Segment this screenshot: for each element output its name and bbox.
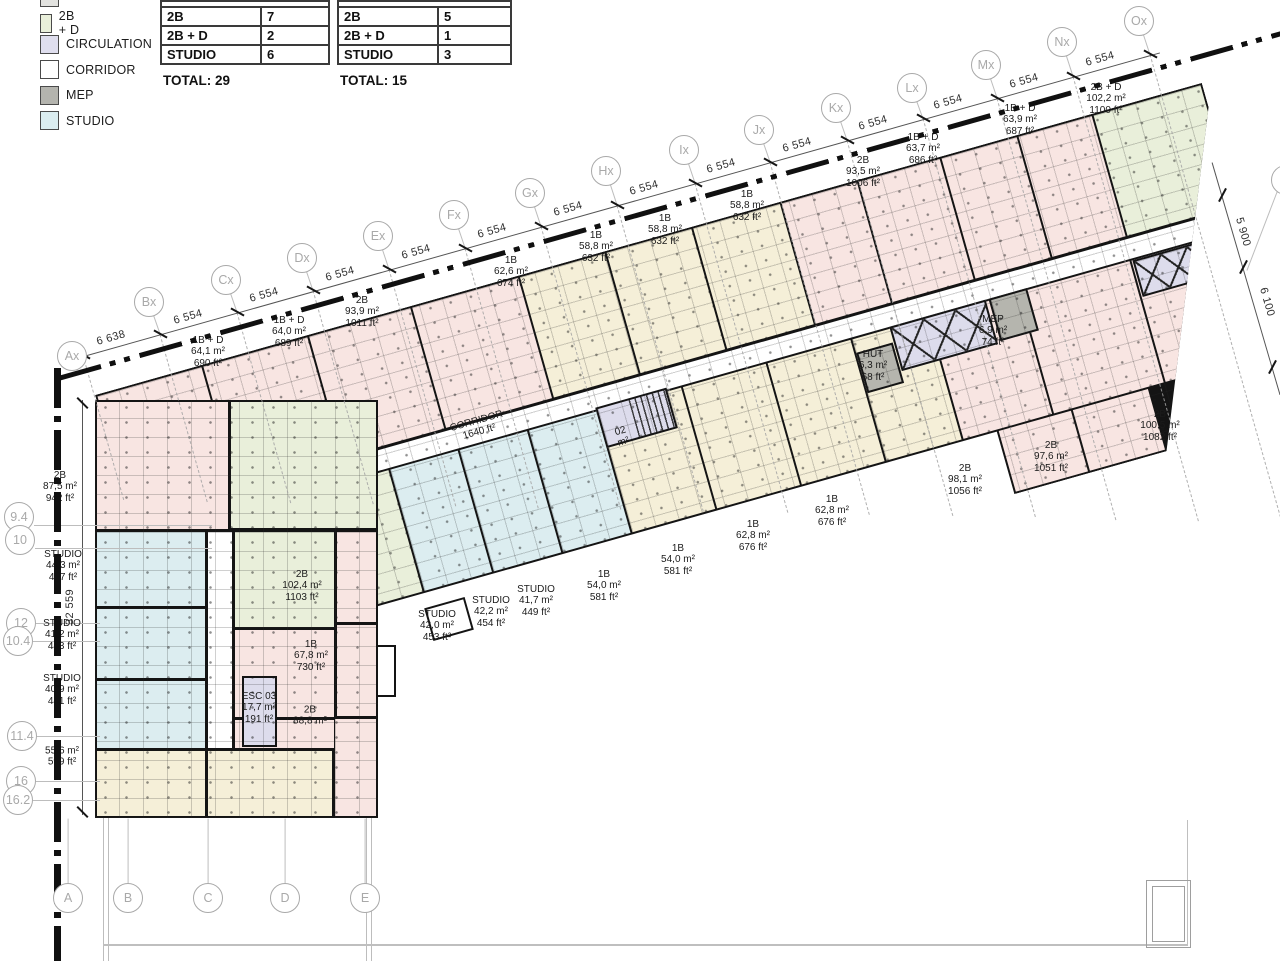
legend-item: 2B + D <box>40 9 82 37</box>
unit-label: STUDIO41,7 m²449 ft² <box>517 584 555 618</box>
unit-label-line: 54,0 m² <box>661 554 695 565</box>
bubble-leader <box>1246 180 1280 271</box>
grid-bubble-ox: Ox <box>1124 6 1154 36</box>
unit-label-line: 58,8 m² <box>648 224 682 235</box>
unit-label-line: 599 ft² <box>45 757 79 768</box>
grid-bubble-label: E <box>361 891 369 905</box>
grid-bubble-d: D <box>270 883 300 913</box>
unit-label-line: 6,3 m² <box>859 360 887 371</box>
unit-label-line: 40,9 m² <box>43 684 81 695</box>
unit-label: STUDIO42,2 m²454 ft² <box>472 595 510 629</box>
legend-item-label: CORRIDOR <box>66 63 136 77</box>
unit-label-line: 191 ft² <box>242 714 276 725</box>
unit-label-line: 100,5 m² <box>1140 420 1179 431</box>
unit-label: MEP6,9 m²74 ft² <box>979 314 1007 348</box>
site-outline <box>103 944 1188 946</box>
legend-swatch <box>40 111 59 130</box>
unit-label: STUDIO44,3 m²477 ft² <box>44 549 82 583</box>
unit-label-line: 93,5 m² <box>846 166 880 177</box>
unit-label-line: 1B <box>661 543 695 554</box>
legend-item: CORRIDOR <box>40 60 136 79</box>
grid-bubble-c: C <box>193 883 223 913</box>
unit-label-line: 449 ft² <box>517 607 555 618</box>
unit-count-cell: 5 <box>439 8 510 25</box>
floor-plan-canvas: 2B + DCIRCULATIONCORRIDORMEPSTUDIO 2B72B… <box>0 0 1280 961</box>
grid-bubble-label: 11.4 <box>10 729 33 743</box>
bubble-leader <box>33 800 100 801</box>
unit-type-cell: STUDIO <box>339 46 439 63</box>
unit-label-line: 1B <box>815 494 849 505</box>
grid-bubble-label: Nx <box>1054 35 1069 49</box>
legend-item-label: 2B + D <box>59 9 82 37</box>
unit-label-line: STUDIO <box>472 595 510 606</box>
bubble-leader <box>127 819 128 884</box>
unit-label-line: 67,8 m² <box>294 650 328 661</box>
grid-bubble-10.4: 10.4 <box>3 626 33 656</box>
unit-cell <box>337 625 376 716</box>
left-wing-building <box>95 400 378 818</box>
grid-bubble-hx: Hx <box>591 156 621 186</box>
dimension-line-left <box>82 400 83 815</box>
unit-label-line: 1B <box>648 213 682 224</box>
unit-label-line: 453 ft² <box>418 632 456 643</box>
unit-label-line: 64,1 m² <box>191 346 225 357</box>
dimension-text: 6 100 <box>1257 286 1277 318</box>
legend-item: MEP <box>40 86 94 105</box>
unit-label-line: 102,2 m² <box>1086 93 1125 104</box>
grid-bubble-cx: Cx <box>211 265 241 295</box>
unit-label: 2B93,5 m²1006 ft² <box>846 155 880 189</box>
unit-label: 1B58,8 m²632 ft² <box>730 189 764 223</box>
unit-label-line: 730 ft² <box>294 662 328 673</box>
grid-bubble-label: 16.2 <box>6 793 30 807</box>
unit-label-line: 41,7 m² <box>517 595 555 606</box>
unit-cell <box>208 532 232 748</box>
unit-label-line: STUDIO <box>44 549 82 560</box>
grid-bubble-label: C <box>203 891 212 905</box>
unit-label-line: 2B <box>1034 440 1068 451</box>
balcony <box>376 645 396 697</box>
legend-item-label: MEP <box>66 88 94 102</box>
site-shaft-outline <box>1152 886 1185 942</box>
unit-cell <box>97 609 205 678</box>
unit-label-line: 454 ft² <box>472 618 510 629</box>
unit-label-line: 2B <box>282 569 321 580</box>
grid-bubble-label: Ex <box>371 229 386 243</box>
unit-label-line: 97,6 m² <box>1034 451 1068 462</box>
legend-item-label: STUDIO <box>66 114 114 128</box>
unit-label-line: 632 ft² <box>730 212 764 223</box>
unit-count-cell: 7 <box>262 8 328 25</box>
unit-label: 1B62,8 m²676 ft² <box>736 519 770 553</box>
unit-label-line: 1B <box>736 519 770 530</box>
unit-label-line: 62,8 m² <box>736 530 770 541</box>
unit-label-line: 676 ft² <box>815 517 849 528</box>
unit-label-line: 1006 ft² <box>846 178 880 189</box>
grid-bubble-label: B <box>124 891 132 905</box>
grid-bubble-label: 10.4 <box>6 634 30 648</box>
unit-type-cell: STUDIO <box>162 46 262 63</box>
unit-label-line: 63,7 m² <box>906 143 940 154</box>
bubble-leader <box>67 819 68 884</box>
grid-bubble-ex: Ex <box>363 221 393 251</box>
unit-label-line: 443 ft² <box>43 641 81 652</box>
unit-count-table: 2B52B + D1STUDIO3 <box>337 0 512 65</box>
unit-cell <box>337 532 376 622</box>
unit-label-line: 632 ft² <box>648 236 682 247</box>
grid-bubble-label: Gx <box>522 186 538 200</box>
unit-label: 1B62,6 m²674 ft² <box>494 255 528 289</box>
unit-label-line: 88,8 m² <box>293 716 327 727</box>
bubble-leader <box>36 781 100 782</box>
unit-label-line: 93,9 m² <box>345 306 379 317</box>
unit-type-cell: 2B + D <box>339 27 439 44</box>
unit-label: 2B98,1 m²1056 ft² <box>948 463 982 497</box>
unit-label: 1B54,0 m²581 ft² <box>661 543 695 577</box>
unit-label-line: 1B <box>730 189 764 200</box>
unit-label-line: 102,4 m² <box>282 580 321 591</box>
unit-label-line: 55,6 m² <box>45 746 79 757</box>
unit-label-line: 68 ft² <box>859 372 887 383</box>
unit-count-cell: 3 <box>439 46 510 63</box>
grid-bubble-ax: Ax <box>57 341 87 371</box>
grid-bubble-mx: Mx <box>971 50 1001 80</box>
bubble-leader <box>364 819 365 884</box>
unit-label: 1B62,8 m²676 ft² <box>815 494 849 528</box>
unit-label-line: 54,0 m² <box>587 580 621 591</box>
unit-cell <box>208 751 332 816</box>
table-total: TOTAL: 29 <box>163 73 230 88</box>
grid-bubble-bx: Bx <box>134 287 164 317</box>
bubble-leader <box>207 819 208 884</box>
unit-count-table: 2B72B + D2STUDIO6 <box>160 0 330 65</box>
table-row: STUDIO3 <box>339 46 510 63</box>
grid-bubble-e: E <box>350 883 380 913</box>
unit-label-line: 2B <box>293 705 327 716</box>
grid-bubble-jx: Jx <box>744 115 774 145</box>
unit-label-line: 1011 ft² <box>345 318 379 329</box>
grid-bubble-label: Kx <box>829 101 844 115</box>
grid-bubble-label: Fx <box>447 208 461 222</box>
unit-label-line: 42,0 m² <box>418 620 456 631</box>
unit-label-line: 64,0 m² <box>272 326 306 337</box>
unit-type-cell: 2B + D <box>162 27 262 44</box>
unit-label: 2B93,9 m²1011 ft² <box>345 295 379 329</box>
bubble-leader <box>37 736 100 737</box>
legend-swatch <box>40 60 59 79</box>
grid-bubble-b: B <box>113 883 143 913</box>
unit-label-line: STUDIO <box>43 673 81 684</box>
unit-label: ESC 0317,7 m²191 ft² <box>242 691 276 725</box>
unit-label-line: 1B <box>294 639 328 650</box>
unit-label-line: 687 ft² <box>1003 126 1037 137</box>
table-row: 2B + D1 <box>339 27 510 46</box>
unit-label-line: STUDIO <box>418 609 456 620</box>
unit-label-line: ESC 03 <box>242 691 276 702</box>
unit-label-line: 690 ft² <box>191 358 225 369</box>
grid-bubble-10: 10 <box>5 525 35 555</box>
grid-bubble-label: 9.4 <box>10 510 27 524</box>
legend-item: STUDIO <box>40 111 114 130</box>
unit-label-line: 17,7 m² <box>242 702 276 713</box>
unit-label: 1B54,0 m²581 ft² <box>587 569 621 603</box>
grid-bubble-label: D <box>280 891 289 905</box>
unit-label-line: 689 ft² <box>272 338 306 349</box>
grid-bubble-fx: Fx <box>439 200 469 230</box>
grid-bubble-label: Ox <box>1131 14 1147 28</box>
grid-bubble-label: Cx <box>218 273 233 287</box>
unit-label-line: 42,2 m² <box>472 606 510 617</box>
legend-swatch <box>40 14 52 33</box>
table-row: 2B + D2 <box>162 27 328 46</box>
grid-bubble-right-partial <box>1271 165 1280 195</box>
unit-label-line: 441 ft² <box>43 696 81 707</box>
unit-label: 1B58,8 m²632 ft² <box>579 230 613 264</box>
unit-cell <box>231 402 376 528</box>
unit-label-line: HUT <box>859 349 887 360</box>
grid-bubble-label: Mx <box>978 58 995 72</box>
unit-label-line: 686 ft² <box>906 155 940 166</box>
grid-bubble-label: Jx <box>753 123 766 137</box>
unit-label-line: 44,3 m² <box>44 560 82 571</box>
unit-label: 1B67,8 m²730 ft² <box>294 639 328 673</box>
legend-item-label: CIRCULATION <box>66 37 152 51</box>
unit-label-line: 62,6 m² <box>494 266 528 277</box>
unit-label-line: 1103 ft² <box>282 592 321 603</box>
unit-label-line: 58,8 m² <box>579 241 613 252</box>
property-line-left <box>54 368 61 961</box>
unit-label: 2B100,5 m²1082 ft² <box>1140 409 1179 443</box>
site-outline <box>103 818 109 961</box>
unit-label: 2B102,4 m²1103 ft² <box>282 569 321 603</box>
table-row: 2B7 <box>162 8 328 27</box>
grid-bubble-dx: Dx <box>287 243 317 273</box>
grid-bubble-kx: Kx <box>821 93 851 123</box>
unit-label-line: 477 ft² <box>44 572 82 583</box>
unit-label: STUDIO42,0 m²453 ft² <box>418 609 456 643</box>
table-row: STUDIO6 <box>162 46 328 63</box>
unit-label-line: 1051 ft² <box>1034 463 1068 474</box>
grid-bubble-a: A <box>53 883 83 913</box>
bubble-leader <box>284 819 285 884</box>
unit-cell <box>97 751 205 816</box>
grid-bubble-label: Lx <box>905 81 918 95</box>
unit-label-line: MEP <box>979 314 1007 325</box>
legend-item: CIRCULATION <box>40 35 152 54</box>
unit-count-cell: 2 <box>262 27 328 44</box>
unit-label-line: 1100 ft² <box>1086 105 1125 116</box>
unit-cell <box>97 402 228 529</box>
grid-bubble-ix: Ix <box>669 135 699 165</box>
unit-label-line: STUDIO <box>43 618 81 629</box>
unit-label: 55,6 m²599 ft² <box>45 746 79 769</box>
unit-label: 1B58,8 m²632 ft² <box>648 213 682 247</box>
unit-label: STUDIO40,9 m²441 ft² <box>43 673 81 707</box>
unit-label: 1B + D64,0 m²689 ft² <box>272 315 306 349</box>
grid-bubble-label: A <box>64 891 72 905</box>
table-total: TOTAL: 15 <box>340 73 407 88</box>
unit-label-line: 2B <box>1140 409 1179 420</box>
grid-bubble-nx: Nx <box>1047 27 1077 57</box>
grid-bubble-11.4: 11.4 <box>7 721 37 751</box>
unit-type-cell: 2B <box>339 8 439 25</box>
unit-label: STUDIO41,2 m²443 ft² <box>43 618 81 652</box>
unit-label: 2B97,6 m²1051 ft² <box>1034 440 1068 474</box>
unit-label-line: STUDIO <box>517 584 555 595</box>
grid-bubble-gx: Gx <box>515 178 545 208</box>
unit-label-line: 1B <box>587 569 621 580</box>
unit-label-line: 581 ft² <box>587 592 621 603</box>
unit-label-line: 2B <box>948 463 982 474</box>
grid-bubble-label: Ax <box>65 349 80 363</box>
unit-cell <box>97 532 205 606</box>
unit-label-line: 676 ft² <box>736 542 770 553</box>
legend-swatch <box>40 86 59 105</box>
unit-label: 2B88,8 m² <box>293 705 327 728</box>
unit-type-cell: 2B <box>162 8 262 25</box>
unit-label-line: 581 ft² <box>661 566 695 577</box>
grid-bubble-16.2: 16.2 <box>3 785 33 815</box>
grid-bubble-label: 10 <box>13 533 27 547</box>
unit-cell <box>97 681 205 748</box>
grid-bubble-label: Hx <box>598 164 613 178</box>
unit-label-line: 6,9 m² <box>979 325 1007 336</box>
grid-bubble-label: Dx <box>294 251 309 265</box>
unit-count-cell: 6 <box>262 46 328 63</box>
legend-swatch-clipped <box>40 0 59 7</box>
unit-cell <box>335 719 376 816</box>
unit-label-line: 1082 ft² <box>1140 432 1179 443</box>
table-row: 2B5 <box>339 8 510 27</box>
unit-label-line: 74 ft² <box>979 337 1007 348</box>
unit-label: HUT6,3 m²68 ft² <box>859 349 887 383</box>
unit-label-line: 63,9 m² <box>1003 114 1037 125</box>
unit-label-line: 674 ft² <box>494 278 528 289</box>
grid-bubble-lx: Lx <box>897 73 927 103</box>
grid-bubble-label: Bx <box>142 295 157 309</box>
unit-count-cell: 1 <box>439 27 510 44</box>
unit-label-line: 41,2 m² <box>43 629 81 640</box>
legend-swatch <box>40 35 59 54</box>
unit-label-line: 632 ft² <box>579 253 613 264</box>
unit-label-line: 58,8 m² <box>730 200 764 211</box>
unit-label-line: 62,8 m² <box>815 505 849 516</box>
grid-bubble-label: Ix <box>679 143 689 157</box>
unit-label-line: 98,1 m² <box>948 474 982 485</box>
unit-label-line: 1056 ft² <box>948 486 982 497</box>
